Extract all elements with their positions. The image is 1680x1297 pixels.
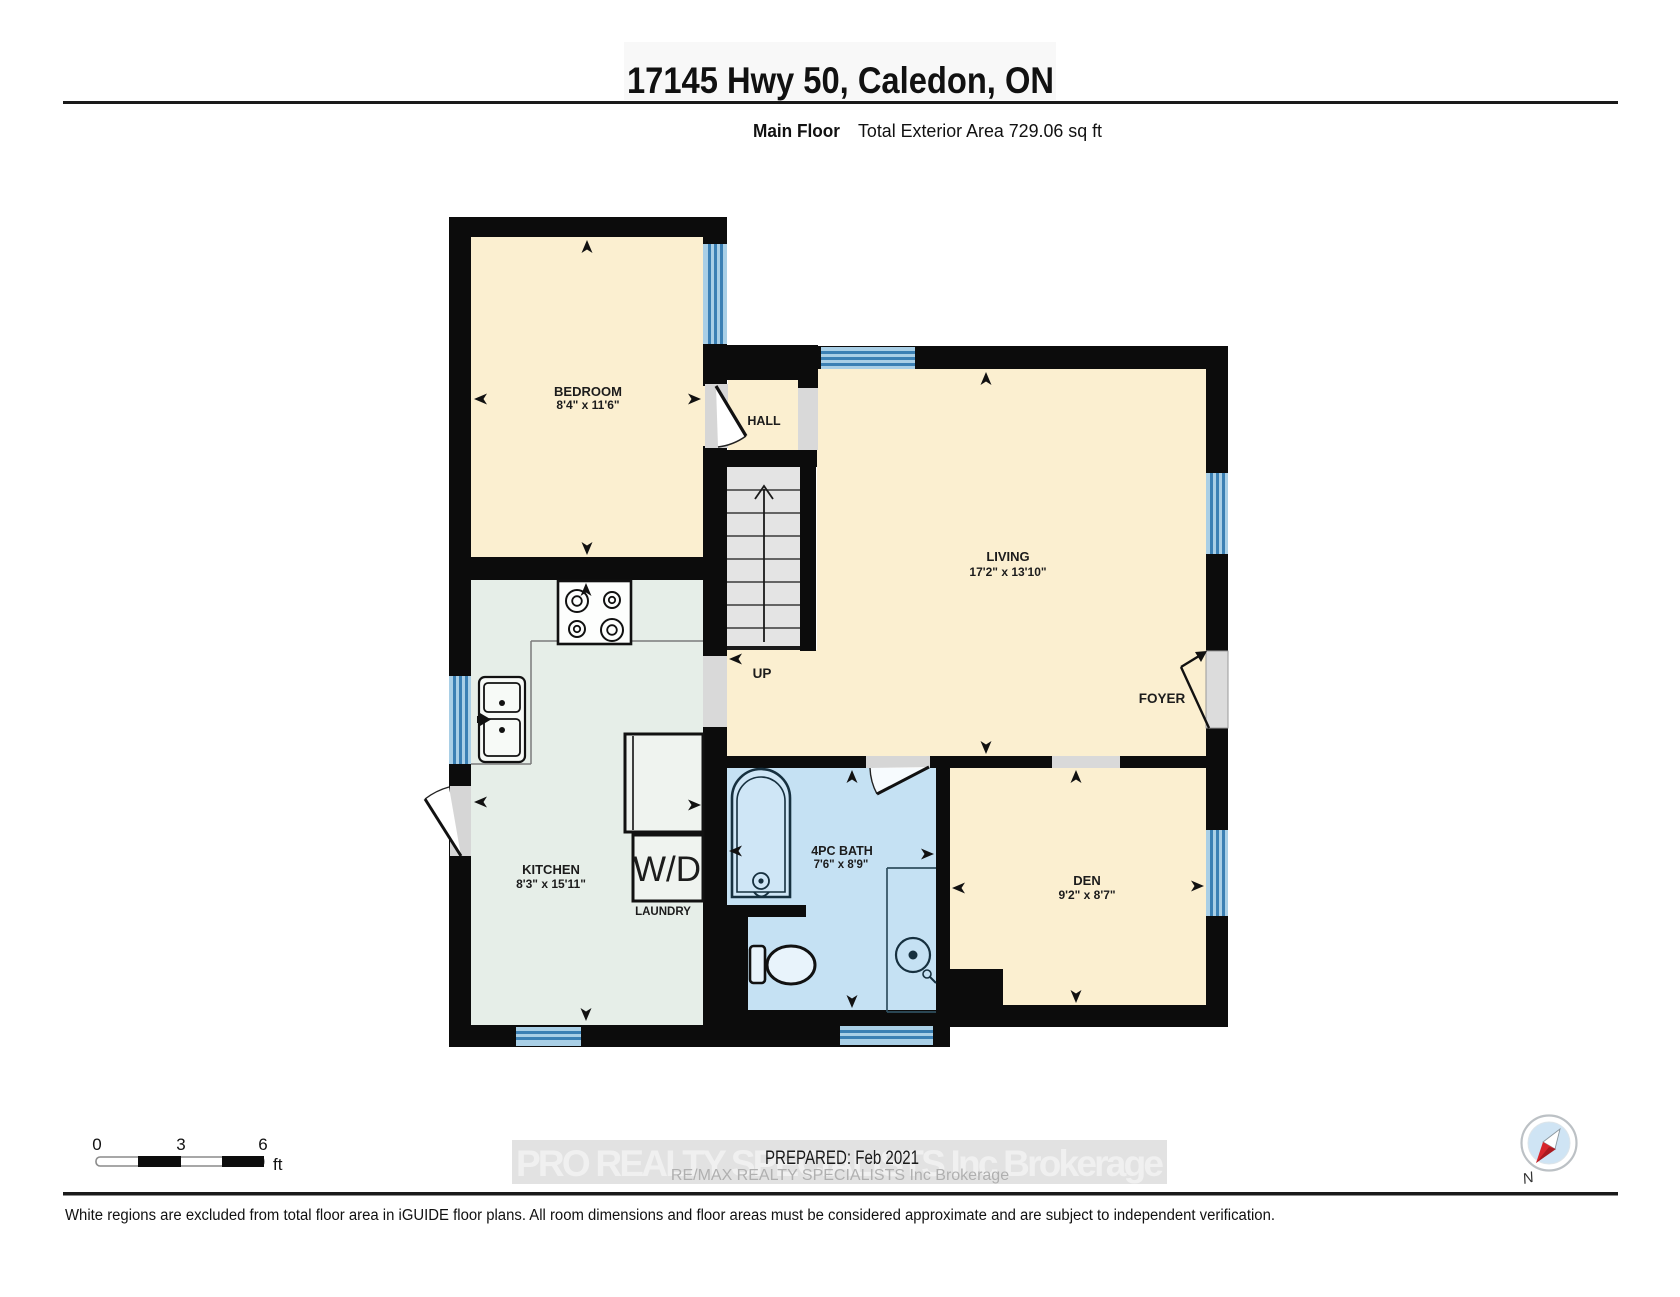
svg-text:Main Floor: Main Floor xyxy=(753,121,840,141)
svg-text:3: 3 xyxy=(176,1135,185,1154)
svg-text:7'6" x 8'9": 7'6" x 8'9" xyxy=(814,859,869,871)
svg-text:FOYER: FOYER xyxy=(1139,691,1186,706)
svg-text:17'2" x 13'10": 17'2" x 13'10" xyxy=(969,565,1046,579)
svg-text:N: N xyxy=(1521,1169,1536,1188)
svg-text:W/D: W/D xyxy=(633,850,701,889)
svg-text:HALL: HALL xyxy=(747,414,781,428)
svg-text:8'4" x 11'6": 8'4" x 11'6" xyxy=(556,398,619,412)
svg-text:Total Exterior Area 729.06 sq: Total Exterior Area 729.06 sq ft xyxy=(858,121,1102,141)
svg-text:ft: ft xyxy=(273,1155,283,1174)
svg-text:LIVING: LIVING xyxy=(986,549,1029,564)
svg-text:PREPARED: Feb 2021: PREPARED: Feb 2021 xyxy=(765,1148,919,1169)
svg-text:LAUNDRY: LAUNDRY xyxy=(635,906,691,918)
svg-text:8'3" x 15'11": 8'3" x 15'11" xyxy=(516,877,586,891)
svg-text:17145 Hwy 50, Caledon, ON: 17145 Hwy 50, Caledon, ON xyxy=(627,60,1054,101)
svg-text:BEDROOM: BEDROOM xyxy=(554,384,622,399)
svg-text:0: 0 xyxy=(92,1135,101,1154)
svg-text:4PC BATH: 4PC BATH xyxy=(811,844,873,858)
svg-text:UP: UP xyxy=(753,666,772,681)
svg-text:KITCHEN: KITCHEN xyxy=(522,862,580,877)
svg-text:DEN: DEN xyxy=(1073,873,1100,888)
svg-text:9'2" x 8'7": 9'2" x 8'7" xyxy=(1058,888,1115,902)
svg-text:RE/MAX REALTY SPECIALISTS Inc: RE/MAX REALTY SPECIALISTS Inc Brokerage xyxy=(671,1167,1009,1184)
svg-text:White regions are excluded fro: White regions are excluded from total fl… xyxy=(65,1207,1275,1224)
svg-text:6: 6 xyxy=(258,1135,267,1154)
